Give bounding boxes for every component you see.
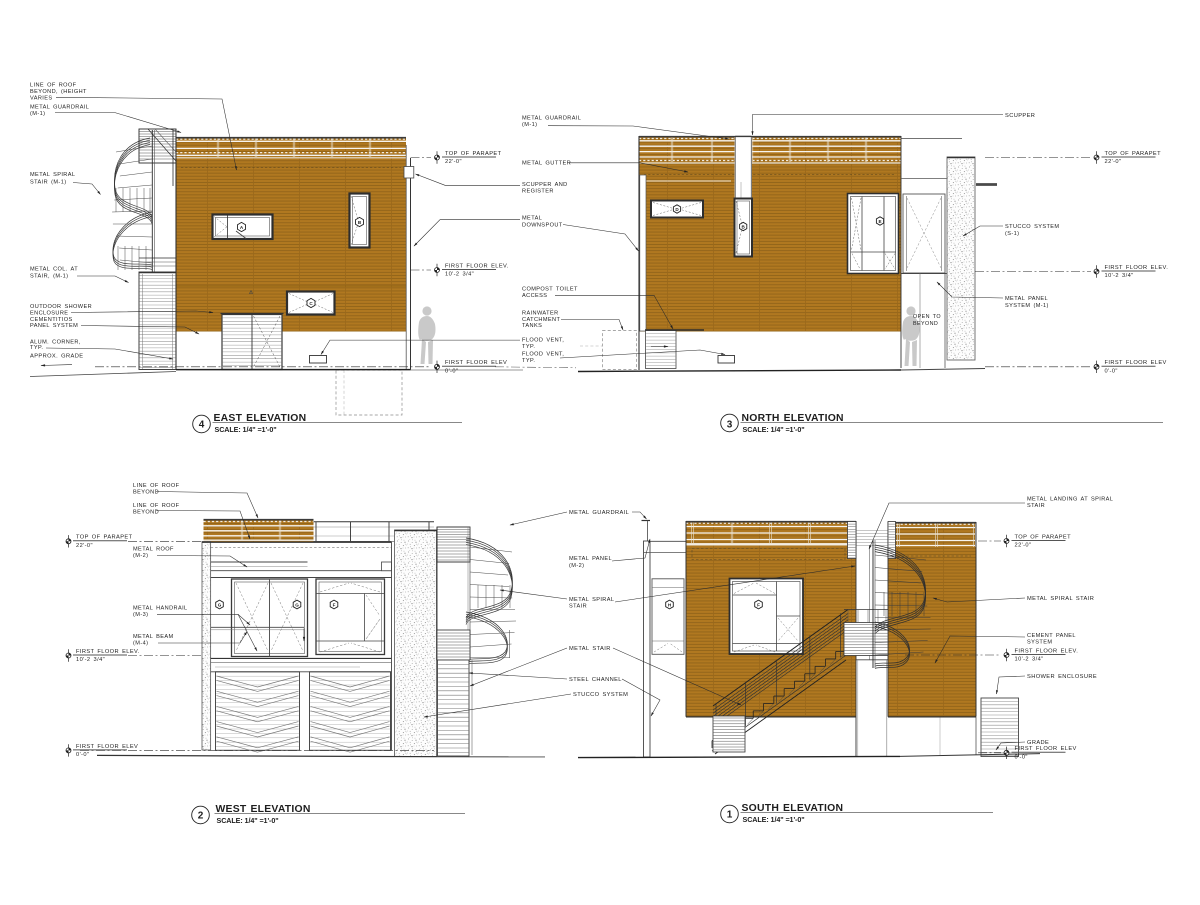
svg-text:BEYOND: BEYOND bbox=[913, 321, 938, 327]
svg-text:10'-2 3/4": 10'-2 3/4" bbox=[445, 272, 474, 278]
svg-text:METAL PANEL: METAL PANEL bbox=[1005, 296, 1048, 302]
svg-text:LINE OF ROOF: LINE OF ROOF bbox=[133, 483, 180, 489]
svg-text:ENCLOSURE: ENCLOSURE bbox=[30, 310, 68, 316]
svg-text:TYP.: TYP. bbox=[30, 345, 43, 351]
svg-text:SCALE: 1/4" =1'-0": SCALE: 1/4" =1'-0" bbox=[743, 425, 805, 434]
svg-text:METAL GUARDRAIL: METAL GUARDRAIL bbox=[30, 105, 89, 111]
svg-text:TYP.: TYP. bbox=[522, 344, 535, 350]
svg-text:4: 4 bbox=[199, 420, 205, 431]
svg-text:METAL SPIRAL: METAL SPIRAL bbox=[30, 172, 75, 178]
svg-text:FLOOD VENT,: FLOOD VENT, bbox=[522, 338, 564, 344]
svg-text:FIRST FLOOR ELEV.: FIRST FLOOR ELEV. bbox=[445, 263, 509, 269]
svg-text:METAL BEAM: METAL BEAM bbox=[133, 634, 174, 640]
svg-text:DOWNSPOUT: DOWNSPOUT bbox=[522, 223, 563, 229]
svg-text:(S-1): (S-1) bbox=[1005, 231, 1019, 237]
svg-text:METAL STAIR: METAL STAIR bbox=[569, 646, 611, 652]
svg-text:APPROX. GRADE: APPROX. GRADE bbox=[30, 354, 83, 360]
svg-text:LINE OF ROOF: LINE OF ROOF bbox=[133, 503, 180, 509]
svg-text:STAIR (M-1): STAIR (M-1) bbox=[30, 180, 66, 186]
svg-text:METAL GUARDRAIL: METAL GUARDRAIL bbox=[522, 116, 581, 122]
svg-text:(M-1): (M-1) bbox=[522, 122, 537, 128]
svg-text:ACCESS: ACCESS bbox=[522, 293, 547, 299]
svg-text:GRADE: GRADE bbox=[1027, 740, 1049, 746]
svg-text:(M-3): (M-3) bbox=[133, 612, 148, 618]
svg-text:F: F bbox=[333, 602, 336, 607]
svg-text:METAL SPIRAL STAIR: METAL SPIRAL STAIR bbox=[1027, 596, 1094, 602]
svg-text:METAL: METAL bbox=[522, 216, 542, 222]
svg-text:METAL GUARDRAIL: METAL GUARDRAIL bbox=[569, 510, 629, 516]
svg-text:TANKS: TANKS bbox=[522, 323, 542, 329]
svg-text:1: 1 bbox=[727, 810, 733, 821]
svg-text:SCUPPER AND: SCUPPER AND bbox=[522, 182, 568, 188]
svg-text:(M-2): (M-2) bbox=[569, 563, 584, 569]
svg-text:FIRST FLOOR ELEV: FIRST FLOOR ELEV bbox=[445, 360, 507, 366]
svg-text:PANEL SYSTEM: PANEL SYSTEM bbox=[30, 323, 78, 329]
svg-text:CEMENTITIOS: CEMENTITIOS bbox=[30, 317, 73, 323]
svg-text:STAIR: STAIR bbox=[569, 604, 587, 610]
svg-text:STAIR, (M-1): STAIR, (M-1) bbox=[30, 274, 68, 280]
svg-text:(M-2): (M-2) bbox=[133, 553, 148, 559]
svg-text:SCALE: 1/4" =1'-0": SCALE: 1/4" =1'-0" bbox=[743, 815, 805, 824]
svg-text:BEYOND, (HEIGHT: BEYOND, (HEIGHT bbox=[30, 89, 87, 95]
svg-text:METAL ROOF: METAL ROOF bbox=[133, 546, 174, 552]
svg-text:VARIES: VARIES bbox=[30, 95, 53, 101]
svg-text:BEYOND: BEYOND bbox=[133, 510, 159, 516]
svg-text:G: G bbox=[218, 602, 222, 607]
svg-text:3: 3 bbox=[727, 420, 733, 431]
svg-text:COMPOST TOILET: COMPOST TOILET bbox=[522, 286, 578, 292]
svg-text:G: G bbox=[295, 602, 299, 607]
svg-text:OUTDOOR SHOWER: OUTDOOR SHOWER bbox=[30, 304, 92, 310]
svg-text:SYSTEM: SYSTEM bbox=[1027, 640, 1052, 646]
svg-text:BEYOND: BEYOND bbox=[133, 490, 159, 496]
svg-text:22'-0": 22'-0" bbox=[445, 159, 462, 165]
svg-text:10'-2 3/4": 10'-2 3/4" bbox=[76, 657, 105, 663]
svg-text:E: E bbox=[878, 219, 881, 224]
svg-text:SHOWER ENCLOSURE: SHOWER ENCLOSURE bbox=[1027, 674, 1097, 680]
svg-text:TYP.: TYP. bbox=[522, 358, 535, 364]
svg-text:TOP OF PARAPET: TOP OF PARAPET bbox=[445, 151, 502, 157]
svg-text:STUCCO SYSTEM: STUCCO SYSTEM bbox=[1005, 224, 1059, 230]
svg-text:0'-0": 0'-0" bbox=[76, 752, 89, 758]
svg-text:22'-0": 22'-0" bbox=[1015, 543, 1032, 549]
svg-text:TOP OF PARAPET: TOP OF PARAPET bbox=[1105, 151, 1162, 157]
svg-text:FIRST FLOOR ELEV: FIRST FLOOR ELEV bbox=[76, 744, 138, 750]
svg-text:CATCHMENT: CATCHMENT bbox=[522, 317, 560, 323]
svg-text:METAL LANDING AT SPIRAL: METAL LANDING AT SPIRAL bbox=[1027, 497, 1113, 503]
svg-text:METAL SPIRAL: METAL SPIRAL bbox=[569, 597, 614, 603]
svg-text:SYSTEM (M-1): SYSTEM (M-1) bbox=[1005, 303, 1049, 309]
svg-text:LINE OF ROOF: LINE OF ROOF bbox=[30, 82, 77, 88]
svg-text:0'-0": 0'-0" bbox=[1105, 368, 1118, 374]
svg-text:FIRST FLOOR ELEV.: FIRST FLOOR ELEV. bbox=[76, 649, 140, 655]
svg-text:2: 2 bbox=[198, 811, 204, 822]
svg-text:FLOOD VENT,: FLOOD VENT, bbox=[522, 352, 564, 358]
svg-text:CEMENT PANEL: CEMENT PANEL bbox=[1027, 633, 1076, 639]
svg-text:METAL PANEL: METAL PANEL bbox=[569, 556, 612, 562]
svg-text:SCALE: 1/4" =1'-0": SCALE: 1/4" =1'-0" bbox=[215, 425, 277, 434]
svg-text:STEEL CHANNEL: STEEL CHANNEL bbox=[569, 677, 622, 683]
svg-text:10'-2 3/4": 10'-2 3/4" bbox=[1105, 273, 1134, 279]
svg-text:FIRST FLOOR ELEV.: FIRST FLOOR ELEV. bbox=[1015, 648, 1079, 654]
svg-text:TOP OF PARAPET: TOP OF PARAPET bbox=[76, 535, 133, 541]
svg-text:TOP OF PARAPET: TOP OF PARAPET bbox=[1015, 534, 1072, 540]
svg-text:FIRST FLOOR ELEV.: FIRST FLOOR ELEV. bbox=[1105, 265, 1169, 271]
svg-text:SCALE: 1/4" =1'-0": SCALE: 1/4" =1'-0" bbox=[217, 816, 279, 825]
svg-text:STAIR: STAIR bbox=[1027, 503, 1045, 509]
svg-text:(M-4): (M-4) bbox=[133, 641, 148, 647]
svg-text:F: F bbox=[757, 602, 760, 607]
svg-text:0'-0": 0'-0" bbox=[1015, 754, 1028, 760]
svg-text:10'-2 3/4": 10'-2 3/4" bbox=[1015, 657, 1044, 663]
svg-text:METAL GUTTER: METAL GUTTER bbox=[522, 160, 571, 166]
svg-text:(M-1): (M-1) bbox=[30, 111, 45, 117]
svg-text:0'-0": 0'-0" bbox=[445, 368, 458, 374]
svg-text:RAINWATER: RAINWATER bbox=[522, 311, 559, 317]
svg-text:SCUPPER: SCUPPER bbox=[1005, 113, 1035, 119]
svg-text:22'-0": 22'-0" bbox=[76, 543, 93, 549]
svg-text:METAL HANDRAIL: METAL HANDRAIL bbox=[133, 605, 188, 611]
svg-text:OPEN TO: OPEN TO bbox=[913, 314, 941, 320]
svg-text:STUCCO SYSTEM: STUCCO SYSTEM bbox=[573, 692, 628, 698]
svg-text:REGISTER: REGISTER bbox=[522, 188, 554, 194]
svg-text:FIRST FLOOR ELEV: FIRST FLOOR ELEV bbox=[1015, 746, 1077, 752]
svg-text:METAL COL. AT: METAL COL. AT bbox=[30, 267, 78, 273]
svg-text:22'-0": 22'-0" bbox=[1105, 159, 1122, 165]
svg-text:FIRST FLOOR ELEV: FIRST FLOOR ELEV bbox=[1105, 360, 1167, 366]
